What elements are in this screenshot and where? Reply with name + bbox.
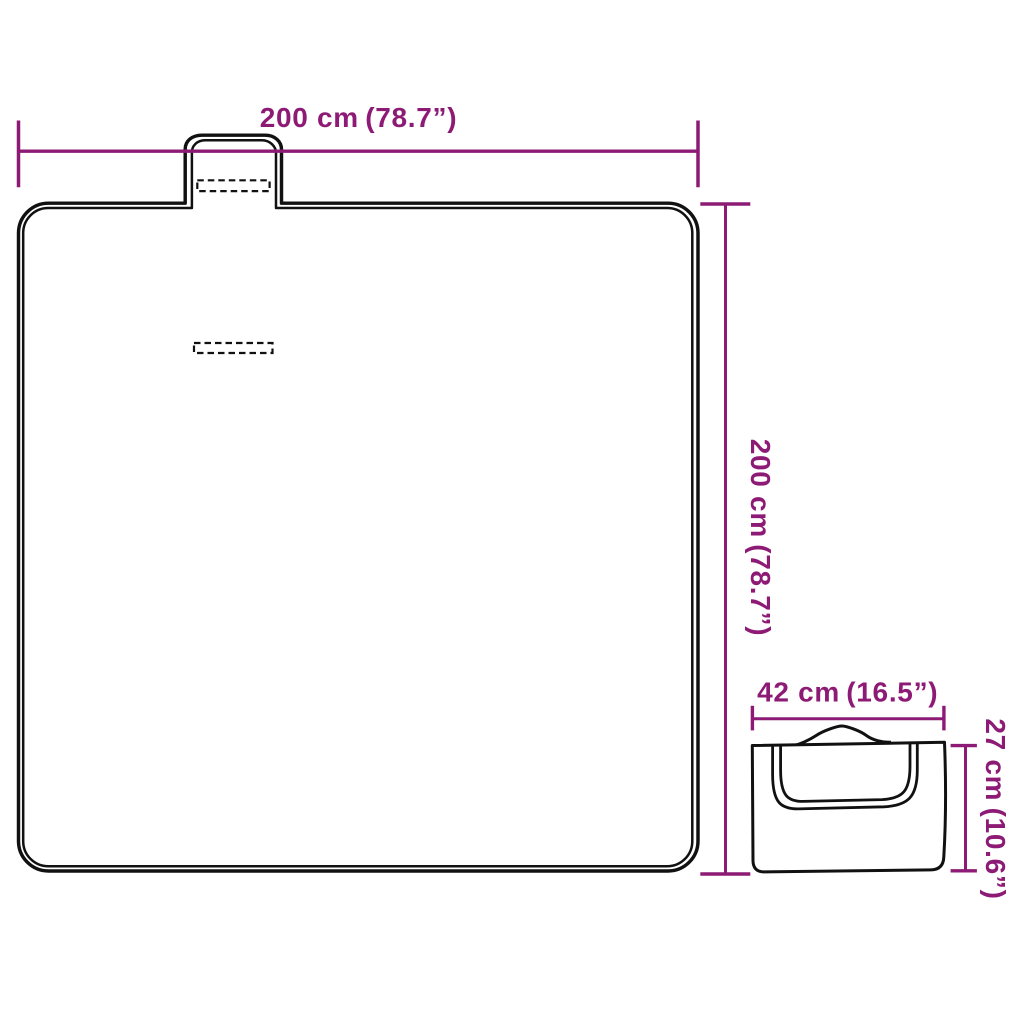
svg-text:200 cm (78.7”): 200 cm (78.7”) [745, 439, 776, 637]
svg-text:200 cm (78.7”): 200 cm (78.7”) [260, 102, 458, 133]
svg-text:27 cm (10.6”): 27 cm (10.6”) [980, 718, 1011, 899]
svg-text:42 cm (16.5”): 42 cm (16.5”) [757, 677, 938, 708]
